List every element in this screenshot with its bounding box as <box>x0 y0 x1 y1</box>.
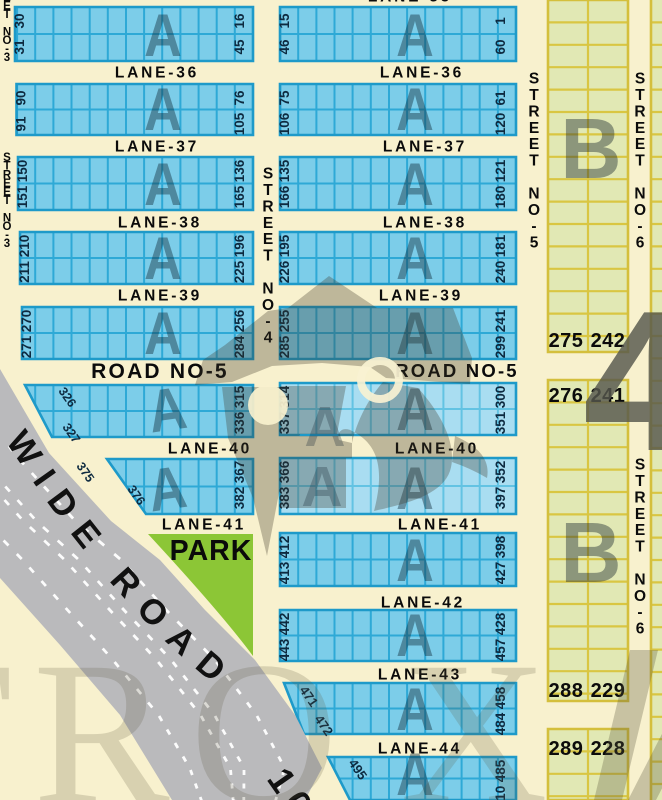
svg-text:O: O <box>528 202 540 219</box>
svg-text:A: A <box>144 76 182 143</box>
svg-text:E: E <box>635 136 645 153</box>
svg-text:O: O <box>634 588 646 605</box>
svg-text:1: 1 <box>493 17 508 25</box>
svg-text:135: 135 <box>277 159 292 182</box>
svg-text:A: A <box>144 2 182 69</box>
svg-text:X: X <box>400 620 548 800</box>
svg-text:240: 240 <box>493 261 508 284</box>
svg-text:LANE-37: LANE-37 <box>115 139 199 156</box>
svg-text:R: R <box>33 620 170 800</box>
svg-text:A: A <box>396 76 434 143</box>
svg-text:LANE-39: LANE-39 <box>379 288 463 305</box>
svg-text:-: - <box>637 218 642 235</box>
svg-text:120: 120 <box>493 113 508 136</box>
svg-text:R: R <box>528 103 539 120</box>
svg-text:6: 6 <box>636 235 645 252</box>
svg-text:427: 427 <box>493 562 508 585</box>
svg-text:E: E <box>263 215 273 232</box>
svg-text:B: B <box>560 506 621 601</box>
svg-text:T: T <box>263 182 273 199</box>
svg-text:413: 413 <box>277 561 292 584</box>
svg-text:299: 299 <box>493 336 508 359</box>
svg-text:60: 60 <box>493 39 508 54</box>
svg-text:30: 30 <box>12 13 27 28</box>
svg-text:3: 3 <box>4 52 10 64</box>
svg-text:412: 412 <box>277 536 292 559</box>
svg-text:LANE-39: LANE-39 <box>118 288 202 305</box>
svg-text:352: 352 <box>493 461 508 484</box>
svg-text:45: 45 <box>232 39 247 55</box>
svg-text:105: 105 <box>232 112 247 135</box>
svg-text:16: 16 <box>232 13 247 29</box>
svg-text:LANE-41: LANE-41 <box>398 517 482 534</box>
svg-text:A: A <box>396 151 434 218</box>
svg-text:136: 136 <box>232 159 247 182</box>
svg-text:LANE-36: LANE-36 <box>115 65 199 82</box>
svg-text:121: 121 <box>493 159 508 182</box>
svg-text:256: 256 <box>232 309 247 332</box>
svg-text:R: R <box>634 103 645 120</box>
svg-text:LANE-38: LANE-38 <box>383 215 467 232</box>
svg-text:T: T <box>0 620 12 800</box>
svg-text:75: 75 <box>277 90 292 106</box>
svg-text:76: 76 <box>232 90 247 106</box>
svg-text:181: 181 <box>493 234 508 257</box>
svg-text:LANE-41: LANE-41 <box>162 517 246 534</box>
svg-text:270: 270 <box>19 310 34 333</box>
svg-text:91: 91 <box>14 116 29 132</box>
svg-text:T: T <box>529 87 539 104</box>
svg-text:E: E <box>529 120 539 137</box>
svg-text:N: N <box>262 280 273 297</box>
svg-text:S: S <box>263 166 273 183</box>
svg-text:225: 225 <box>232 260 247 283</box>
svg-text:T: T <box>3 9 10 21</box>
svg-text:166: 166 <box>277 185 292 208</box>
svg-text:165: 165 <box>232 185 247 208</box>
svg-text:46: 46 <box>277 39 292 55</box>
svg-text:398: 398 <box>493 535 508 558</box>
svg-text:275: 275 <box>549 330 584 352</box>
svg-text:S: S <box>635 71 645 88</box>
svg-text:61: 61 <box>493 90 508 106</box>
svg-text:5: 5 <box>530 235 539 252</box>
svg-text:241: 241 <box>493 309 508 332</box>
svg-text:210: 210 <box>17 235 32 258</box>
svg-text:382: 382 <box>232 487 247 510</box>
svg-text:N: N <box>528 185 539 202</box>
svg-text:271: 271 <box>19 335 34 358</box>
svg-text:T: T <box>3 195 10 207</box>
svg-text:150: 150 <box>15 160 30 183</box>
svg-text:288: 288 <box>549 680 584 702</box>
svg-text:226: 226 <box>277 260 292 283</box>
svg-text:300: 300 <box>493 386 508 409</box>
svg-text:31: 31 <box>12 39 27 55</box>
svg-text:15: 15 <box>277 13 292 29</box>
svg-text:O: O <box>190 620 338 800</box>
svg-text:196: 196 <box>232 234 247 257</box>
svg-text:106: 106 <box>277 112 292 135</box>
svg-text:397: 397 <box>493 487 508 510</box>
svg-text:T: T <box>635 153 645 170</box>
svg-text:276: 276 <box>549 385 584 407</box>
svg-text:LANE-37: LANE-37 <box>383 139 467 156</box>
svg-text:A: A <box>396 2 434 69</box>
svg-text:T: T <box>263 248 273 265</box>
svg-text:211: 211 <box>17 261 32 283</box>
svg-text:O: O <box>634 202 646 219</box>
svg-text:A: A <box>304 395 345 459</box>
svg-text:N: N <box>634 571 645 588</box>
svg-text:A: A <box>144 300 182 367</box>
svg-text:B: B <box>560 102 621 197</box>
svg-text:4: 4 <box>583 270 662 493</box>
svg-text:E: E <box>635 522 645 539</box>
svg-text:3: 3 <box>4 238 10 250</box>
svg-text:90: 90 <box>14 90 29 105</box>
svg-text:LANE-42: LANE-42 <box>381 595 465 612</box>
svg-text:E: E <box>635 120 645 137</box>
svg-text:T: T <box>635 539 645 556</box>
svg-text:E: E <box>635 506 645 523</box>
svg-text:A: A <box>301 455 342 519</box>
svg-text:N: N <box>634 185 645 202</box>
svg-text:LANE-35: LANE-35 <box>368 0 452 6</box>
svg-text:151: 151 <box>15 185 30 208</box>
svg-text:195: 195 <box>277 234 292 257</box>
svg-text:-: - <box>637 604 642 621</box>
svg-text:A: A <box>396 527 434 594</box>
svg-text:T: T <box>529 153 539 170</box>
svg-text:-: - <box>531 218 536 235</box>
svg-text:LANE-36: LANE-36 <box>380 65 464 82</box>
svg-text:A: A <box>396 225 434 292</box>
svg-text:A: A <box>144 151 182 218</box>
svg-text:E: E <box>529 136 539 153</box>
svg-text:180: 180 <box>493 186 508 209</box>
svg-text:T: T <box>635 87 645 104</box>
svg-text:E: E <box>263 231 273 248</box>
svg-text:6: 6 <box>636 621 645 638</box>
svg-text:S: S <box>529 71 539 88</box>
svg-text:351: 351 <box>493 411 508 434</box>
svg-text:LANE-38: LANE-38 <box>118 215 202 232</box>
svg-text:PARK: PARK <box>170 535 253 567</box>
svg-text:289: 289 <box>549 738 584 760</box>
svg-text:R: R <box>262 198 273 215</box>
svg-text:A: A <box>144 225 182 292</box>
